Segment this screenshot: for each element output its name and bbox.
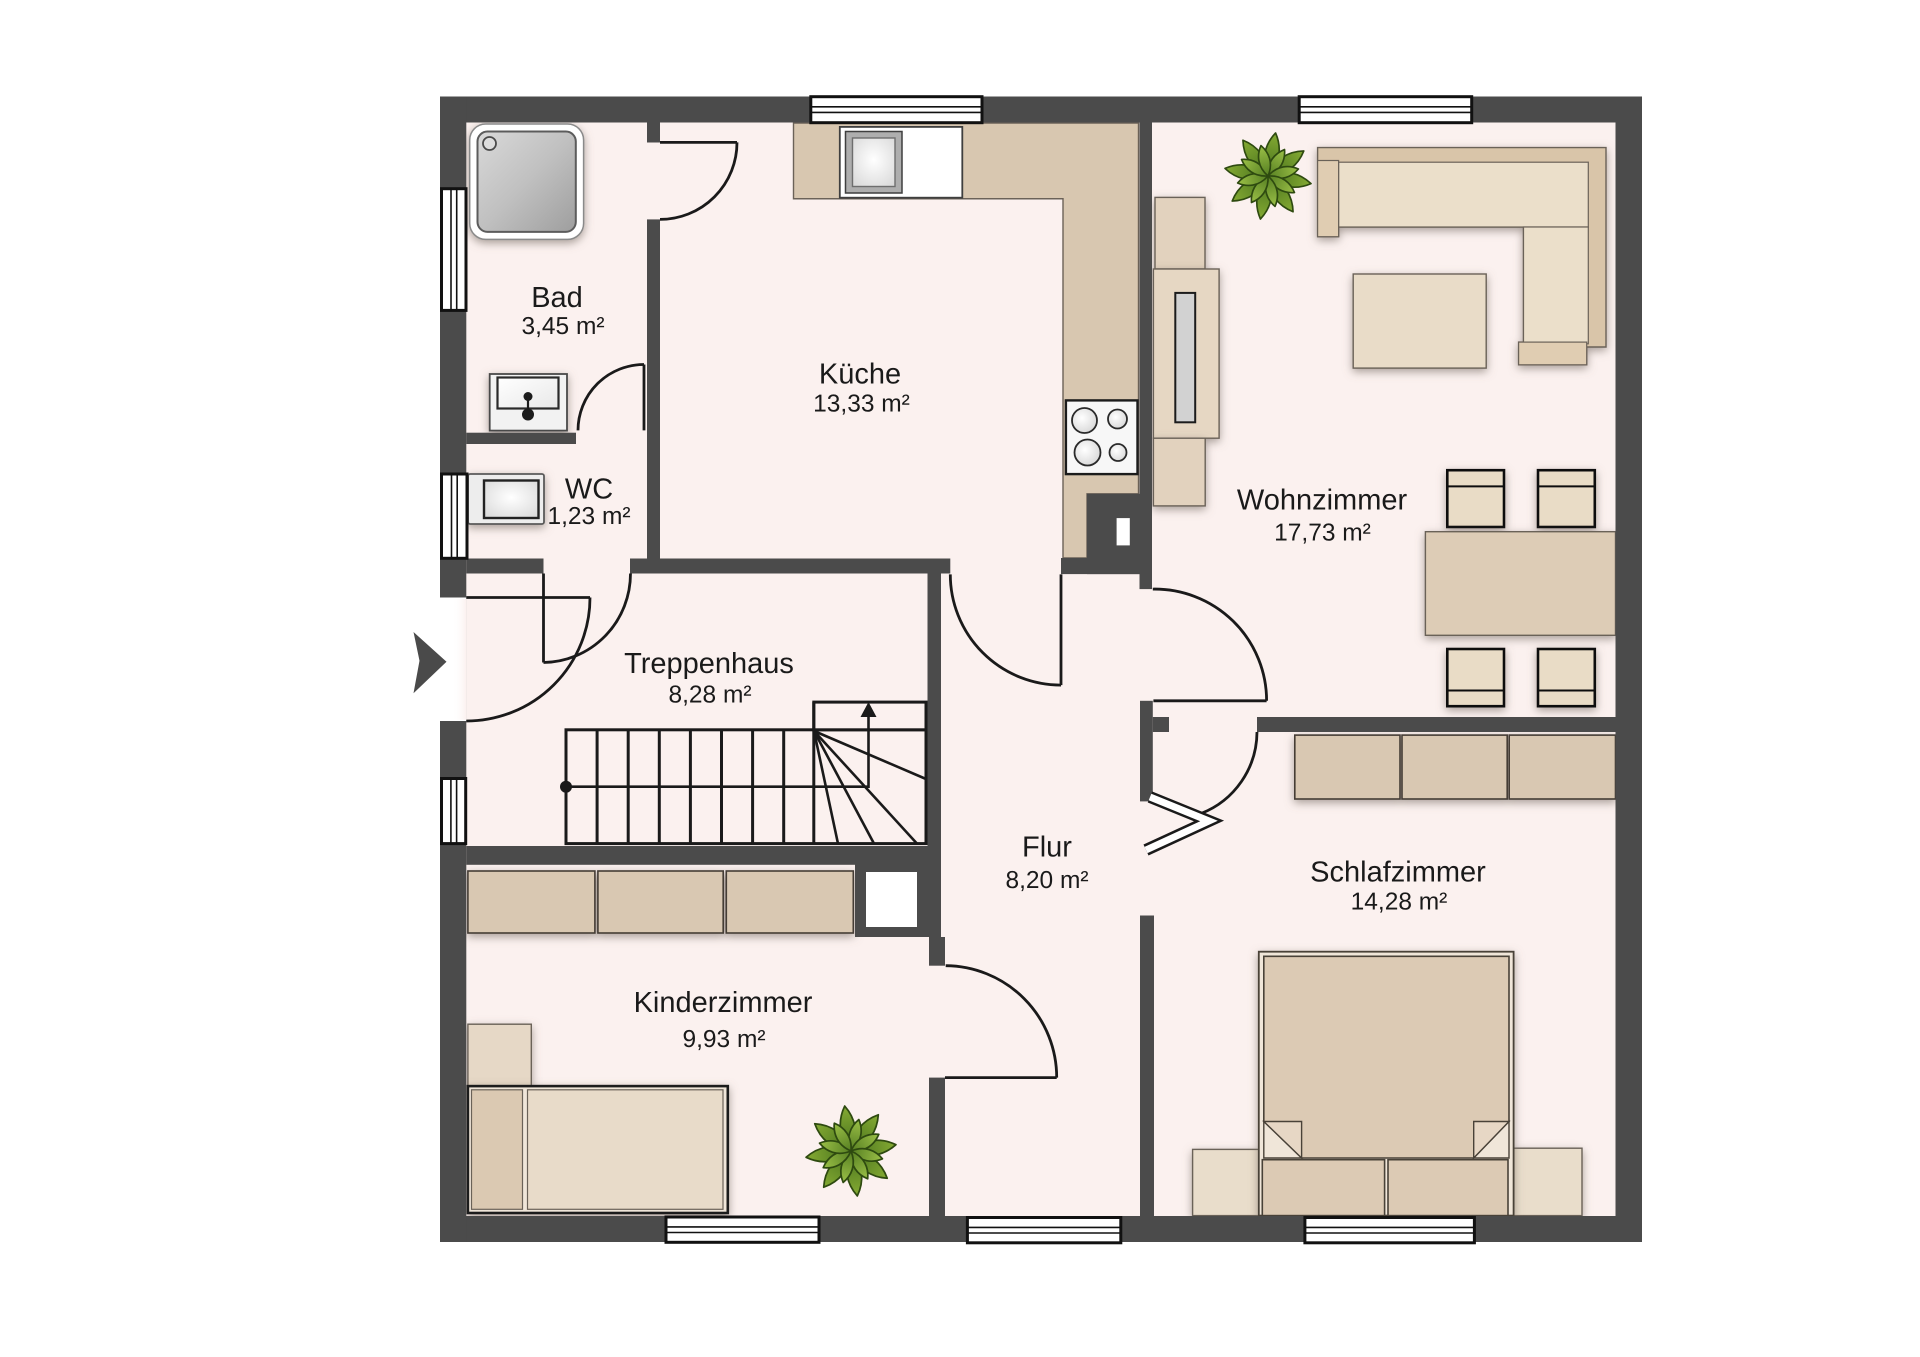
svg-text:14,28 m²: 14,28 m² (1351, 889, 1448, 916)
svg-text:Kinderzimmer: Kinderzimmer (634, 987, 813, 1019)
svg-text:9,93 m²: 9,93 m² (682, 1026, 765, 1053)
svg-text:Bad: Bad (531, 282, 583, 314)
svg-text:Schlafzimmer: Schlafzimmer (1310, 857, 1486, 889)
svg-text:1,23 m²: 1,23 m² (547, 503, 630, 530)
svg-text:17,73 m²: 17,73 m² (1274, 520, 1371, 547)
svg-text:8,28 m²: 8,28 m² (668, 682, 751, 709)
svg-text:Küche: Küche (819, 359, 901, 391)
svg-text:Treppenhaus: Treppenhaus (624, 648, 794, 680)
svg-text:8,20 m²: 8,20 m² (1005, 867, 1088, 894)
svg-text:Wohnzimmer: Wohnzimmer (1237, 485, 1408, 517)
svg-text:WC: WC (565, 474, 613, 506)
svg-text:13,33 m²: 13,33 m² (813, 391, 910, 418)
svg-text:Flur: Flur (1022, 832, 1072, 864)
svg-text:3,45 m²: 3,45 m² (521, 313, 604, 340)
